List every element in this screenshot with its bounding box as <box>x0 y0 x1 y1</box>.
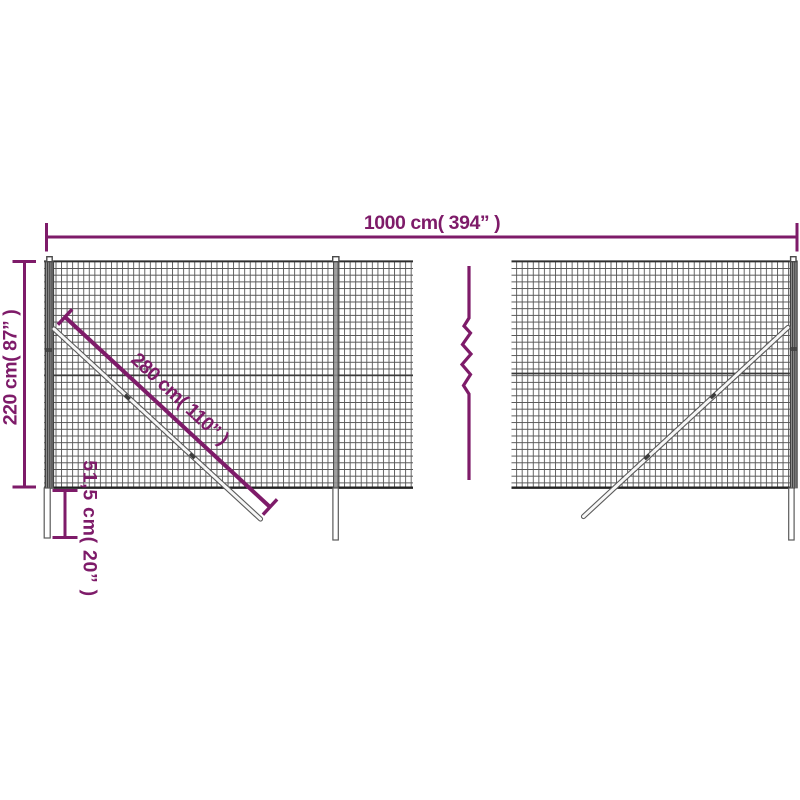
svg-text:220 cm( 87” ): 220 cm( 87” ) <box>0 310 22 426</box>
svg-text:51,5 cm( 20” ): 51,5 cm( 20” ) <box>79 460 101 597</box>
svg-text:1000 cm( 394” ): 1000 cm( 394” ) <box>364 212 500 234</box>
